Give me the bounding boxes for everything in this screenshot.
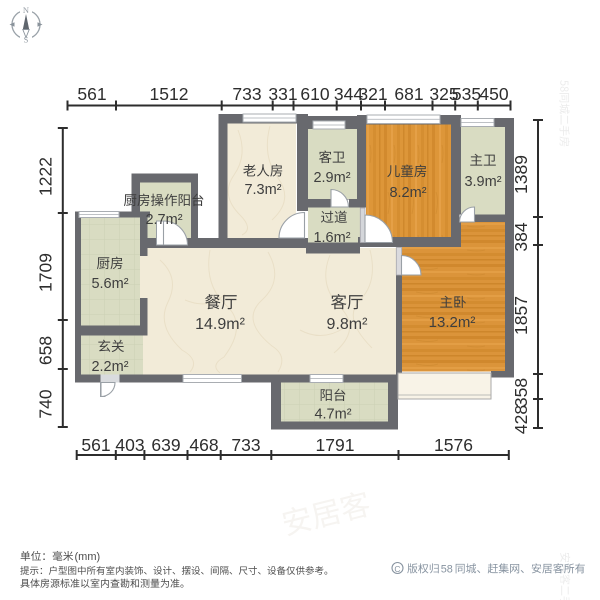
svg-text:610: 610 bbox=[300, 84, 329, 104]
svg-text:5.6m²: 5.6m² bbox=[91, 276, 128, 292]
svg-text:1576: 1576 bbox=[434, 435, 473, 455]
svg-text:1.6m²: 1.6m² bbox=[313, 230, 350, 246]
svg-text:7.3m²: 7.3m² bbox=[244, 182, 281, 198]
svg-text:535: 535 bbox=[452, 84, 481, 104]
svg-text:(mm): (mm) bbox=[75, 551, 101, 563]
svg-text:1857: 1857 bbox=[511, 296, 531, 335]
svg-text:428: 428 bbox=[511, 405, 531, 434]
svg-text:658: 658 bbox=[36, 336, 56, 365]
svg-text:740: 740 bbox=[36, 389, 56, 418]
svg-text:733: 733 bbox=[232, 84, 261, 104]
svg-text:468: 468 bbox=[189, 435, 218, 455]
svg-text:450: 450 bbox=[479, 84, 508, 104]
svg-text:1709: 1709 bbox=[36, 253, 56, 292]
svg-text:14.9m²: 14.9m² bbox=[195, 316, 245, 333]
svg-text:1222: 1222 bbox=[36, 157, 56, 196]
svg-text:403: 403 bbox=[115, 435, 144, 455]
svg-text:N: N bbox=[23, 5, 29, 15]
svg-text:13.2m²: 13.2m² bbox=[429, 314, 476, 331]
svg-text:561: 561 bbox=[77, 84, 106, 104]
svg-text:58: 58 bbox=[441, 564, 453, 576]
svg-text:3.9m²: 3.9m² bbox=[464, 174, 501, 190]
svg-text:561: 561 bbox=[81, 435, 110, 455]
svg-text:4.7m²: 4.7m² bbox=[314, 407, 351, 423]
svg-text:1512: 1512 bbox=[150, 84, 189, 104]
svg-text:2.7m²: 2.7m² bbox=[145, 212, 182, 228]
svg-text:9.8m²: 9.8m² bbox=[327, 316, 369, 333]
svg-text:358: 358 bbox=[511, 378, 531, 407]
svg-text:1389: 1389 bbox=[511, 155, 531, 194]
svg-text:733: 733 bbox=[231, 435, 260, 455]
svg-text:681: 681 bbox=[394, 84, 423, 104]
svg-text:2.9m²: 2.9m² bbox=[313, 170, 350, 186]
svg-text:639: 639 bbox=[151, 435, 180, 455]
svg-text:8.2m²: 8.2m² bbox=[389, 185, 426, 201]
svg-text:C: C bbox=[394, 564, 400, 574]
svg-text:321: 321 bbox=[358, 84, 387, 104]
svg-text:2.2m²: 2.2m² bbox=[91, 359, 128, 375]
svg-text:384: 384 bbox=[511, 222, 531, 251]
svg-text:1791: 1791 bbox=[316, 435, 355, 455]
svg-text:331: 331 bbox=[268, 84, 297, 104]
